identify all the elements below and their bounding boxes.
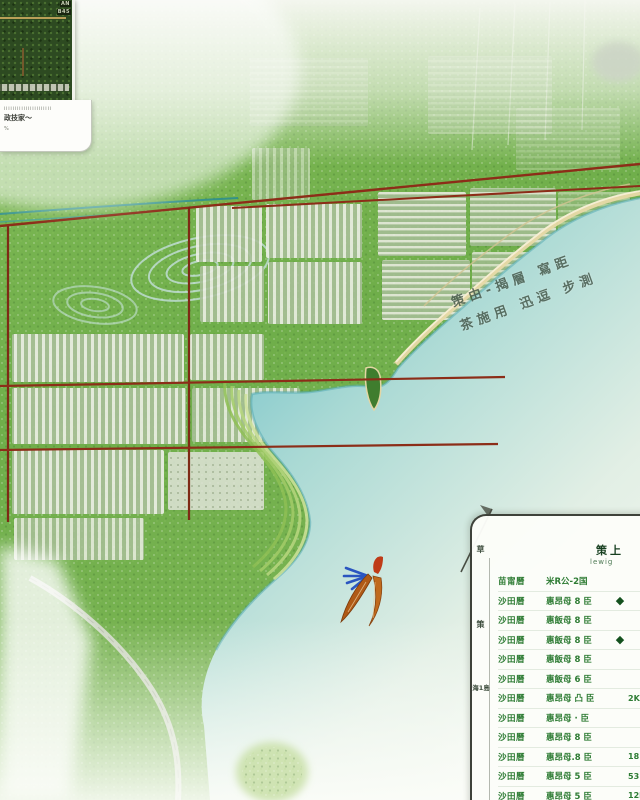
row-zone-cell: 沙田曆 bbox=[498, 634, 546, 646]
legend-note-text: % bbox=[4, 124, 91, 134]
table-row: 沙田曆惠昂母 8 臣◆ bbox=[498, 592, 640, 612]
row-value-cell: 米R公-2国 bbox=[546, 575, 612, 587]
table-subtitle: lewig bbox=[590, 558, 613, 566]
overview-inset-map[interactable]: AN B45 bbox=[0, 0, 75, 103]
table-row: 沙田曆惠昂母 凸 臣2K bbox=[498, 689, 640, 709]
row-zone-cell: 沙田曆 bbox=[498, 614, 546, 626]
table-group-label: 海1島 bbox=[469, 684, 493, 693]
row-value-cell: 惠昂母.8 臣 bbox=[546, 751, 612, 763]
row-number-cell: 12R bbox=[628, 791, 640, 800]
row-zone-cell: 沙田曆 bbox=[498, 790, 546, 800]
row-value-cell: 惠飯母 8 臣 bbox=[546, 614, 612, 626]
row-zone-cell: 沙田曆 bbox=[498, 731, 546, 743]
statistics-table-panel: 策上 lewig 苗甯曆米R公-2国沙田曆惠昂母 8 臣◆沙田曆惠飯母 8 臣沙… bbox=[470, 514, 640, 800]
row-zone-cell: 沙田曆 bbox=[498, 692, 546, 704]
inset-badge: B45 bbox=[57, 9, 71, 15]
table-row: 沙田曆惠昂母 8 臣 bbox=[498, 728, 640, 748]
diamond-marker-icon: ◆ bbox=[612, 595, 628, 606]
table-row: 沙田曆惠飯母 8 臣 bbox=[498, 650, 640, 670]
table-row: 沙田曆惠昂母.8 臣18 bbox=[498, 748, 640, 768]
row-value-cell: 惠昂母 5 臣 bbox=[546, 770, 612, 782]
row-value-cell: 惠昂母 · 臣 bbox=[546, 712, 612, 724]
table-row: 沙田曆惠飯母 8 臣◆ bbox=[498, 631, 640, 651]
table-row: 沙田曆惠昂母 · 臣 bbox=[498, 709, 640, 729]
table-group-label: 草 bbox=[473, 545, 488, 554]
row-value-cell: 惠飯母 8 臣 bbox=[546, 634, 612, 646]
legend-title-text: 政技家〜 bbox=[4, 112, 91, 124]
row-zone-cell: 沙田曆 bbox=[498, 770, 546, 782]
inset-badge: AN bbox=[60, 1, 71, 7]
table-row: 沙田曆惠昂母 5 臣53 bbox=[498, 767, 640, 787]
row-number-cell: 18 bbox=[628, 752, 639, 761]
table-spine-divider bbox=[489, 558, 490, 800]
row-value-cell: 惠昂母 8 臣 bbox=[546, 595, 612, 607]
table-body: 苗甯曆米R公-2国沙田曆惠昂母 8 臣◆沙田曆惠飯母 8 臣沙田曆惠飯母 8 臣… bbox=[498, 572, 640, 800]
row-value-cell: 惠飯母 8 臣 bbox=[546, 653, 612, 665]
legend-info-panel: IIIIIIIIIIIIIIIIIIIIII 政技家〜 % bbox=[0, 100, 92, 152]
row-value-cell: 惠昂母 8 臣 bbox=[546, 731, 612, 743]
row-number-cell: 2K bbox=[628, 694, 640, 703]
row-zone-cell: 沙田曆 bbox=[498, 653, 546, 665]
planning-map-screen: { "colors": { "road_red": "#8c2d18", "ro… bbox=[0, 0, 640, 800]
row-value-cell: 惠昂母 凸 臣 bbox=[546, 692, 612, 704]
inset-marker-line bbox=[22, 48, 24, 76]
table-row: 沙田曆惠昂母 5 臣12R bbox=[498, 787, 640, 800]
row-value-cell: 惠飯母 6 臣 bbox=[546, 673, 612, 685]
row-zone-cell: 沙田曆 bbox=[498, 712, 546, 724]
table-row: 苗甯曆米R公-2国 bbox=[498, 572, 640, 592]
row-zone-cell: 苗甯曆 bbox=[498, 575, 546, 587]
inset-scale-band bbox=[0, 84, 69, 91]
table-row: 沙田曆惠飯母 8 臣 bbox=[498, 611, 640, 631]
inset-road-line bbox=[0, 17, 66, 19]
row-number-cell: 53 bbox=[628, 772, 639, 781]
table-title: 策上 bbox=[596, 542, 624, 558]
row-zone-cell: 沙田曆 bbox=[498, 595, 546, 607]
row-zone-cell: 沙田曆 bbox=[498, 751, 546, 763]
diamond-marker-icon: ◆ bbox=[612, 634, 628, 645]
row-value-cell: 惠昂母 5 臣 bbox=[546, 790, 612, 800]
table-group-label: 策 bbox=[473, 620, 488, 629]
table-row: 沙田曆惠飯母 6 臣 bbox=[498, 670, 640, 690]
row-zone-cell: 沙田曆 bbox=[498, 673, 546, 685]
